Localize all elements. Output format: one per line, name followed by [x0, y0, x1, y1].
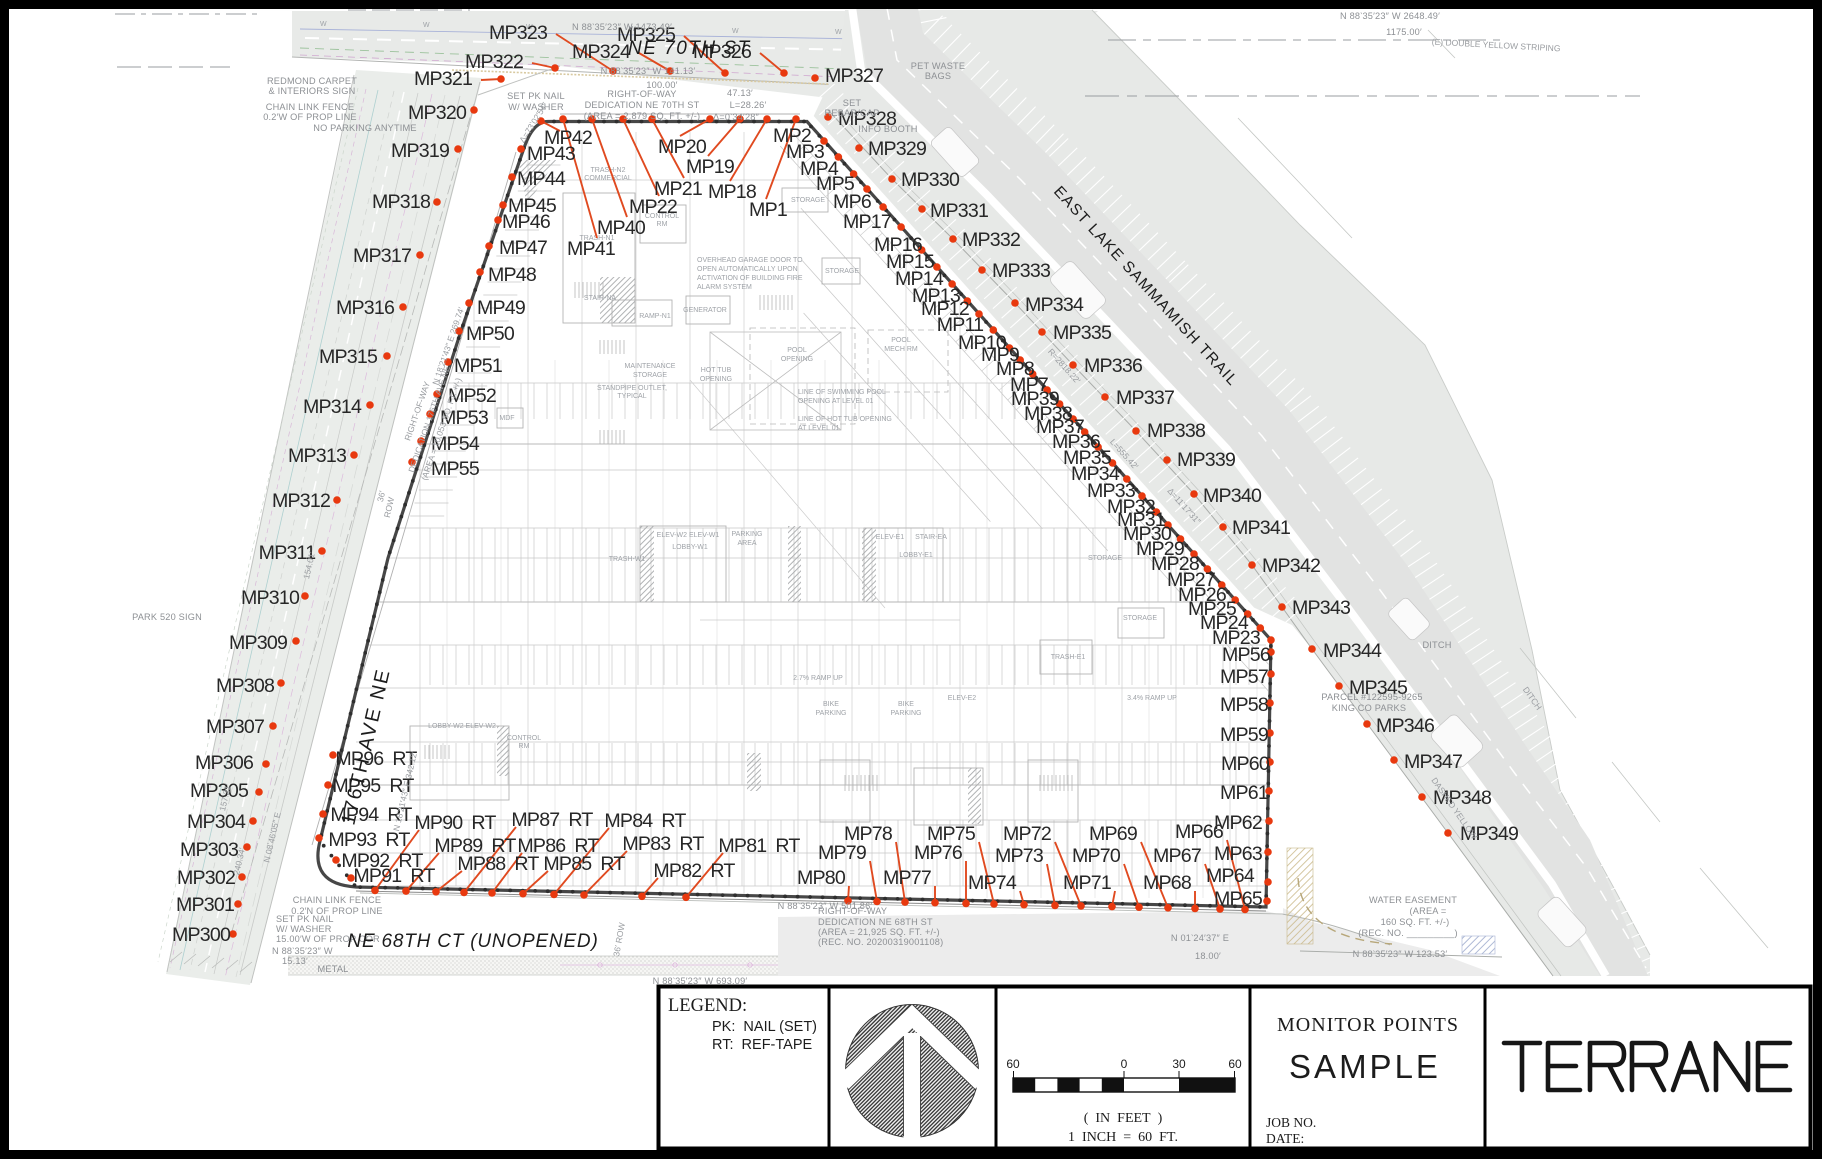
svg-text:MP314: MP314: [303, 396, 362, 418]
svg-text:MP310: MP310: [241, 587, 300, 609]
svg-text:TYPICAL: TYPICAL: [617, 393, 646, 400]
svg-text:MP41: MP41: [567, 238, 615, 260]
svg-text:MP339: MP339: [1177, 449, 1235, 471]
svg-text:MP66: MP66: [1175, 821, 1224, 843]
svg-text:LOBBY-W1: LOBBY-W1: [672, 544, 708, 551]
svg-text:MP322: MP322: [465, 51, 523, 73]
svg-text:MP319: MP319: [391, 140, 449, 162]
svg-text:MP19: MP19: [686, 156, 734, 178]
svg-text:AREA: AREA: [737, 540, 756, 547]
svg-text:MP23: MP23: [1212, 627, 1261, 649]
svg-text:MP313: MP313: [288, 445, 347, 467]
svg-text:0.2′W OF PROP LINE: 0.2′W OF PROP LINE: [263, 112, 356, 122]
svg-text:BIKE: BIKE: [823, 701, 839, 708]
svg-text:RT: REF-TAPE: RT: REF-TAPE: [712, 1037, 812, 1053]
svg-text:MP83RT: MP83RT: [622, 833, 704, 855]
svg-text:MP73: MP73: [995, 845, 1044, 867]
svg-text:(AREA = 21,925 SQ. FT. +/-): (AREA = 21,925 SQ. FT. +/-): [818, 927, 940, 937]
svg-text:KING CO PARKS: KING CO PARKS: [1332, 703, 1406, 713]
svg-text:ELEV-E2: ELEV-E2: [948, 695, 977, 702]
svg-text:MP306: MP306: [195, 752, 254, 774]
svg-text:N 88‵35′23″ W 2648.49′: N 88‵35′23″ W 2648.49′: [1340, 11, 1440, 21]
svg-text:MP334: MP334: [1025, 294, 1084, 316]
svg-text:MP77: MP77: [883, 867, 931, 889]
svg-text:GENERATOR: GENERATOR: [683, 307, 727, 314]
svg-text:MP300: MP300: [172, 924, 231, 946]
svg-text:TRASH-N2: TRASH-N2: [590, 167, 625, 174]
svg-text:MP64: MP64: [1206, 865, 1255, 887]
svg-text:MP303: MP303: [180, 839, 239, 861]
svg-text:PARKING: PARKING: [816, 710, 847, 717]
svg-text:(AREA = 2,879 SQ. FT. +/-): (AREA = 2,879 SQ. FT. +/-): [584, 111, 701, 121]
svg-text:MP340: MP340: [1203, 485, 1262, 507]
svg-text:CHAIN LINK FENCE: CHAIN LINK FENCE: [266, 102, 354, 112]
svg-text:POOL: POOL: [787, 347, 807, 354]
svg-text:COMMERCIAL: COMMERCIAL: [584, 175, 632, 182]
svg-text:MP69: MP69: [1089, 823, 1137, 845]
svg-text:MP308: MP308: [216, 675, 275, 697]
svg-text:REDMOND CARPET: REDMOND CARPET: [267, 76, 357, 86]
svg-text:MP81RT: MP81RT: [718, 835, 800, 857]
svg-text:MP315: MP315: [319, 346, 378, 368]
svg-text:NE 68TH CT (UNOPENED): NE 68TH CT (UNOPENED): [347, 931, 598, 952]
svg-text:MP51: MP51: [454, 355, 502, 377]
svg-text:MONITOR POINTS: MONITOR POINTS: [1277, 1014, 1459, 1036]
svg-text:STORAGE: STORAGE: [791, 197, 825, 204]
svg-text:160 SQ. FT. +/-): 160 SQ. FT. +/-): [1381, 917, 1450, 927]
svg-text:MP44: MP44: [517, 168, 566, 190]
svg-text:MP82RT: MP82RT: [653, 860, 735, 882]
svg-text:OPENING AT LEVEL 01: OPENING AT LEVEL 01: [798, 398, 873, 405]
svg-text:MP70: MP70: [1072, 845, 1121, 867]
svg-text:HOT TUB: HOT TUB: [701, 367, 732, 374]
svg-text:STORAGE: STORAGE: [1088, 555, 1122, 562]
svg-text:MP17: MP17: [843, 211, 891, 233]
svg-text:RM: RM: [519, 743, 530, 750]
svg-text:PARKING: PARKING: [891, 710, 922, 717]
svg-text:LOBBY-E1: LOBBY-E1: [899, 552, 933, 559]
svg-text:MP307: MP307: [206, 716, 264, 738]
svg-text:ALARM SYSTEM: ALARM SYSTEM: [697, 284, 752, 291]
svg-text:PARCEL #122595-9265: PARCEL #122595-9265: [1321, 692, 1422, 702]
svg-text:MP347: MP347: [1404, 751, 1462, 773]
svg-text:MP85RT: MP85RT: [543, 853, 625, 875]
svg-text:0: 0: [1121, 1057, 1128, 1071]
svg-text:MP343: MP343: [1292, 597, 1351, 619]
svg-text:POOL: POOL: [891, 337, 911, 344]
svg-text:MP47: MP47: [499, 237, 547, 259]
svg-text:MP331: MP331: [930, 200, 988, 222]
svg-text:MP57: MP57: [1220, 666, 1268, 688]
svg-text:OPENING: OPENING: [700, 376, 732, 383]
svg-text:RM: RM: [657, 221, 668, 228]
svg-text:BAGS: BAGS: [925, 71, 951, 81]
svg-text:MP74: MP74: [968, 872, 1017, 894]
svg-text:TRASH-E1: TRASH-E1: [1051, 654, 1086, 661]
svg-text:MP78: MP78: [844, 823, 893, 845]
svg-text:MP320: MP320: [408, 102, 467, 124]
svg-text:MP338: MP338: [1147, 420, 1206, 442]
svg-text:STAIR-EA: STAIR-EA: [915, 534, 947, 541]
svg-text:N 88‵35′23″ W 1473.49′: N 88‵35′23″ W 1473.49′: [572, 22, 672, 32]
svg-text:2.7% RAMP UP: 2.7% RAMP UP: [793, 675, 843, 682]
svg-text:MP337: MP337: [1116, 387, 1174, 409]
svg-text:STANDPIPE OUTLET,: STANDPIPE OUTLET,: [597, 385, 667, 392]
svg-text:MP327: MP327: [825, 65, 883, 87]
svg-text:BIKE: BIKE: [898, 701, 914, 708]
svg-text:JOB NO.: JOB NO.: [1266, 1115, 1316, 1130]
svg-text:DITCH: DITCH: [1422, 640, 1451, 650]
svg-text:PARK 520 SIGN: PARK 520 SIGN: [132, 612, 202, 622]
svg-text:30: 30: [1172, 1057, 1186, 1071]
svg-text:NE 70TH ST: NE 70TH ST: [628, 38, 751, 59]
svg-text:( IN FEET ): ( IN FEET ): [1084, 1111, 1163, 1126]
svg-text:PK: NAIL (SET): PK: NAIL (SET): [712, 1019, 817, 1035]
svg-text:NO PARKING ANYTIME: NO PARKING ANYTIME: [313, 123, 417, 133]
svg-text:AT LEVEL 01: AT LEVEL 01: [798, 425, 840, 432]
svg-text:MP65: MP65: [1214, 888, 1263, 910]
svg-text:MP333: MP333: [992, 260, 1051, 282]
svg-text:W: W: [835, 29, 842, 36]
svg-text:TRASH-W1: TRASH-W1: [609, 556, 646, 563]
svg-text:MP75: MP75: [927, 823, 976, 845]
svg-text:MP79: MP79: [818, 842, 866, 864]
svg-text:MP317: MP317: [353, 245, 411, 267]
svg-text:ACTIVATION OF BUILDING FIRE: ACTIVATION OF BUILDING FIRE: [697, 275, 803, 282]
svg-text:RIGHT-OF-WAY: RIGHT-OF-WAY: [607, 89, 676, 99]
svg-text:Δ=0‵34′28″: Δ=0‵34′28″: [713, 112, 760, 122]
svg-text:MP321: MP321: [414, 68, 472, 90]
svg-text:MP67: MP67: [1153, 845, 1201, 867]
svg-text:MP63: MP63: [1214, 843, 1263, 865]
svg-text:N 88‵35′23″ W 141.13′: N 88‵35′23″ W 141.13′: [601, 66, 696, 76]
svg-text:RAMP-N1: RAMP-N1: [639, 313, 671, 320]
svg-text:MP301: MP301: [176, 894, 234, 916]
svg-text:MP87RT: MP87RT: [511, 809, 593, 831]
svg-text:MP329: MP329: [868, 138, 926, 160]
svg-text:MP309: MP309: [229, 632, 287, 654]
svg-text:MDF: MDF: [499, 415, 514, 422]
svg-text:MP330: MP330: [901, 169, 960, 191]
svg-text:47.13′: 47.13′: [727, 88, 753, 98]
svg-text:W: W: [320, 21, 327, 28]
svg-text:60: 60: [1228, 1057, 1242, 1071]
svg-text:DATE:: DATE:: [1266, 1131, 1304, 1146]
svg-text:MP80: MP80: [797, 867, 846, 889]
svg-text:MP48: MP48: [488, 264, 537, 286]
svg-text:CONTROL: CONTROL: [507, 735, 541, 742]
svg-text:STORAGE: STORAGE: [1123, 615, 1157, 622]
svg-text:STAIR-NA: STAIR-NA: [584, 295, 616, 302]
svg-text:MAINTENANCE: MAINTENANCE: [625, 363, 676, 370]
svg-text:N 88‵35′23″ W 123.53′: N 88‵35′23″ W 123.53′: [1353, 949, 1448, 959]
svg-text:LEGEND:: LEGEND:: [668, 996, 747, 1016]
svg-text:MP90RT: MP90RT: [414, 812, 496, 834]
svg-text:OPEN AUTOMATICALLY UPON: OPEN AUTOMATICALLY UPON: [697, 266, 798, 273]
svg-text:(AREA =: (AREA =: [1410, 906, 1447, 916]
svg-text:N 01‵24′37″ E: N 01‵24′37″ E: [1171, 933, 1229, 943]
svg-text:MP84RT: MP84RT: [604, 810, 686, 832]
svg-text:MP312: MP312: [272, 490, 330, 512]
svg-text:MP332: MP332: [962, 229, 1020, 251]
svg-text:MP336: MP336: [1084, 355, 1143, 377]
svg-text:LINE OF HOT TUB OPENING: LINE OF HOT TUB OPENING: [798, 416, 892, 423]
svg-text:(REC. NO. _________): (REC. NO. _________): [1358, 928, 1458, 938]
svg-text:MP302: MP302: [177, 867, 235, 889]
svg-text:RIGHT-OF-WAY: RIGHT-OF-WAY: [818, 906, 887, 916]
svg-text:MP1: MP1: [749, 199, 787, 221]
svg-text:MP318: MP318: [372, 191, 431, 213]
svg-text:WATER EASEMENT: WATER EASEMENT: [1369, 895, 1457, 905]
svg-text:STORAGE: STORAGE: [633, 372, 667, 379]
svg-text:MP346: MP346: [1376, 715, 1435, 737]
svg-text:MP323: MP323: [489, 22, 548, 44]
svg-text:1175.00′: 1175.00′: [1386, 27, 1422, 37]
svg-text:MP68: MP68: [1143, 872, 1192, 894]
svg-text:15.13′: 15.13′: [282, 956, 308, 966]
svg-text:MP21: MP21: [654, 178, 702, 200]
svg-text:MP304: MP304: [187, 811, 246, 833]
svg-text:STORAGE: STORAGE: [825, 268, 859, 275]
svg-text:MP20: MP20: [658, 136, 707, 158]
svg-text:& INTERIORS SIGN: & INTERIORS SIGN: [269, 86, 356, 96]
svg-text:OVERHEAD GARAGE DOOR TO: OVERHEAD GARAGE DOOR TO: [697, 257, 803, 264]
svg-text:DEDICATION NE 68TH ST: DEDICATION NE 68TH ST: [818, 917, 933, 927]
svg-text:METAL: METAL: [318, 964, 349, 974]
svg-text:SET: SET: [843, 98, 862, 108]
svg-text:INFO BOOTH: INFO BOOTH: [858, 124, 917, 134]
svg-text:MP335: MP335: [1053, 322, 1112, 344]
svg-text:W: W: [423, 22, 430, 29]
svg-text:18.00′: 18.00′: [1195, 951, 1221, 961]
svg-text:PET WASTE: PET WASTE: [911, 61, 965, 71]
svg-text:MP91RT: MP91RT: [353, 865, 435, 887]
svg-text:MP58: MP58: [1220, 694, 1269, 716]
svg-text:W: W: [732, 28, 739, 35]
svg-text:MP6: MP6: [833, 191, 872, 213]
svg-text:OPENING: OPENING: [781, 356, 813, 363]
svg-text:1 INCH = 60 FT.: 1 INCH = 60 FT.: [1068, 1130, 1178, 1145]
svg-text:MP341: MP341: [1232, 517, 1290, 539]
svg-text:REBAR/CAP: REBAR/CAP: [825, 108, 880, 118]
svg-text:MP59: MP59: [1220, 724, 1268, 746]
svg-text:CHAIN LINK FENCE: CHAIN LINK FENCE: [293, 895, 381, 905]
svg-text:MP43: MP43: [527, 143, 576, 165]
svg-text:MP342: MP342: [1262, 555, 1320, 577]
svg-text:MP61: MP61: [1220, 782, 1268, 804]
svg-text:ELEV-E1: ELEV-E1: [876, 534, 905, 541]
svg-text:60: 60: [1006, 1057, 1020, 1071]
svg-text:W/ WASHER: W/ WASHER: [276, 924, 332, 934]
svg-text:DEDICATION NE 70TH ST: DEDICATION NE 70TH ST: [585, 100, 700, 110]
svg-text:L=28.26′: L=28.26′: [730, 100, 767, 110]
svg-text:ELEV-W2 ELEV-W1: ELEV-W2 ELEV-W1: [657, 532, 720, 539]
svg-text:MP344: MP344: [1323, 640, 1382, 662]
svg-text:MP49: MP49: [477, 297, 525, 319]
svg-text:PARKING: PARKING: [732, 531, 763, 538]
svg-text:LINE OF SWIMMING POOL: LINE OF SWIMMING POOL: [798, 389, 886, 396]
svg-text:MP55: MP55: [431, 458, 480, 480]
svg-text:MP71: MP71: [1063, 872, 1111, 894]
svg-text:3.4% RAMP UP: 3.4% RAMP UP: [1127, 695, 1177, 702]
svg-text:N 88‵35′23″ W: N 88‵35′23″ W: [272, 946, 333, 956]
svg-text:MP40: MP40: [597, 217, 646, 239]
svg-text:MP60: MP60: [1221, 753, 1270, 775]
svg-text:SAMPLE: SAMPLE: [1289, 1048, 1441, 1085]
svg-text:LOBBY-W2 ELEV-W2: LOBBY-W2 ELEV-W2: [428, 723, 496, 730]
svg-text:MP72: MP72: [1003, 823, 1051, 845]
svg-text:SET PK NAIL: SET PK NAIL: [276, 914, 334, 924]
svg-text:(REC. NO. 20200319001108): (REC. NO. 20200319001108): [818, 937, 943, 947]
svg-text:MECH RM: MECH RM: [884, 346, 918, 353]
svg-text:MP50: MP50: [466, 323, 515, 345]
svg-text:MP46: MP46: [502, 211, 551, 233]
svg-text:MP316: MP316: [336, 297, 395, 319]
svg-text:MP76: MP76: [914, 842, 963, 864]
svg-text:SET PK NAIL: SET PK NAIL: [507, 91, 565, 101]
